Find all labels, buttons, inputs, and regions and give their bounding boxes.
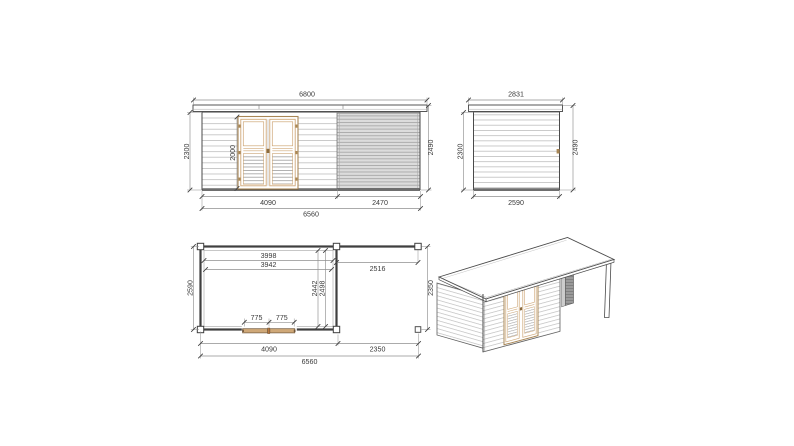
door-louver-right xyxy=(272,154,292,185)
side-elevation-view: 2831 2300 2490 2590 xyxy=(448,82,588,212)
drawing-canvas: 6800 2300 2000 2490 4090 2470 6560 xyxy=(0,0,794,446)
door-louver-left xyxy=(243,154,263,185)
dim-plan-canopy-width: 2350 xyxy=(370,346,386,354)
dim-plan-canopy-opening: 2516 xyxy=(370,265,386,273)
dim-plan-total-width: 6560 xyxy=(302,358,318,366)
dim-front-cabin-width: 4090 xyxy=(260,199,276,207)
front-double-door xyxy=(238,117,298,190)
front-canopy-opening xyxy=(337,113,420,189)
dim-plan-interior-width-b: 3942 xyxy=(261,261,277,269)
dim-plan-cabin-width: 4090 xyxy=(261,346,277,354)
plan-walls xyxy=(201,247,419,330)
dim-front-door-height: 2000 xyxy=(229,145,237,161)
dim-plan-interior-depth-b: 2498 xyxy=(318,281,326,297)
dim-front-total-width: 6560 xyxy=(303,211,319,219)
plan-door-hardware xyxy=(268,328,270,334)
dim-front-wall-height: 2300 xyxy=(183,144,191,160)
dim-plan-door-leaf-right: 775 xyxy=(276,314,288,322)
floor-plan-view: 3998 3942 2516 2442 2498 2590 2350 xyxy=(178,238,440,370)
dim-side-overall-height: 2490 xyxy=(572,140,580,156)
dim-front-canopy-width: 2470 xyxy=(372,199,388,207)
iso-3d-view xyxy=(428,230,623,358)
iso-slat-unit xyxy=(562,274,574,308)
front-roof xyxy=(193,105,427,112)
front-elevation-view: 6800 2300 2000 2490 4090 2470 6560 xyxy=(170,82,450,224)
side-wall xyxy=(474,112,560,190)
iso-canopy-post xyxy=(605,261,612,318)
dim-front-overall-width: 6800 xyxy=(299,91,315,99)
dim-side-roof-depth: 2831 xyxy=(508,91,524,99)
dim-side-wall-height: 2300 xyxy=(456,144,464,160)
plan-canopy-post xyxy=(415,327,421,333)
side-door-edge xyxy=(557,149,560,154)
dim-plan-door-leaf-left: 775 xyxy=(251,314,263,322)
dim-front-overall-height: 2490 xyxy=(427,140,435,156)
dim-side-base-depth: 2590 xyxy=(508,199,524,207)
plan-door xyxy=(242,326,297,334)
dim-plan-side-depth: 2590 xyxy=(186,280,194,296)
side-roof xyxy=(469,105,563,112)
dim-plan-interior-width-a: 3998 xyxy=(261,252,277,260)
door-handle xyxy=(267,149,270,153)
